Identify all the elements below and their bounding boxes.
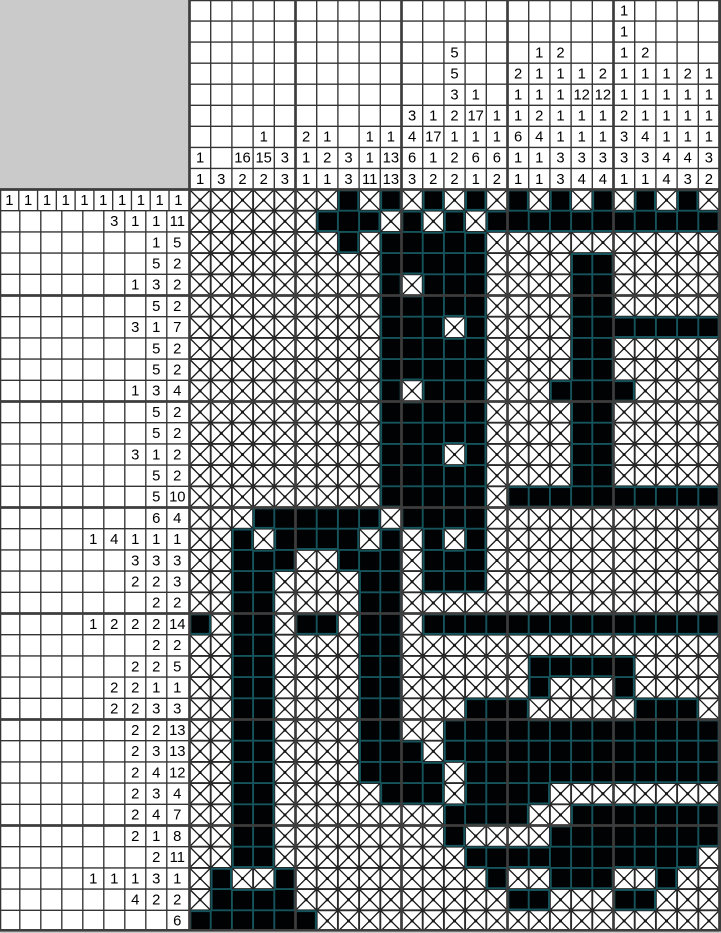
svg-text:6: 6	[472, 151, 480, 167]
svg-text:1: 1	[620, 172, 628, 188]
svg-text:3: 3	[620, 151, 628, 167]
svg-text:1: 1	[110, 871, 118, 887]
svg-text:1: 1	[620, 88, 628, 104]
svg-text:1: 1	[472, 172, 480, 188]
svg-text:1: 1	[137, 193, 145, 209]
svg-text:1: 1	[152, 447, 160, 463]
svg-text:1: 1	[514, 172, 522, 188]
svg-text:11: 11	[170, 214, 185, 230]
svg-text:4: 4	[408, 130, 416, 146]
svg-text:7: 7	[173, 808, 181, 824]
svg-text:14: 14	[169, 617, 185, 633]
svg-text:1: 1	[514, 109, 522, 125]
svg-text:1: 1	[535, 151, 543, 167]
svg-text:3: 3	[344, 172, 352, 188]
svg-text:3: 3	[344, 151, 352, 167]
svg-text:1: 1	[5, 193, 13, 209]
svg-text:1: 1	[705, 66, 713, 82]
svg-text:2: 2	[131, 575, 139, 591]
svg-text:1: 1	[131, 214, 139, 230]
svg-text:2: 2	[302, 130, 310, 146]
svg-text:3: 3	[152, 384, 160, 400]
svg-text:5: 5	[152, 469, 160, 485]
svg-text:1: 1	[24, 193, 32, 209]
svg-text:1: 1	[641, 66, 649, 82]
svg-text:2: 2	[110, 617, 118, 633]
svg-text:1: 1	[173, 532, 181, 548]
svg-text:2: 2	[684, 66, 692, 82]
svg-text:1: 1	[514, 88, 522, 104]
svg-text:3: 3	[684, 172, 692, 188]
svg-text:2: 2	[152, 575, 160, 591]
svg-text:6: 6	[408, 151, 416, 167]
svg-text:2: 2	[173, 893, 181, 909]
svg-text:1: 1	[156, 193, 164, 209]
svg-text:4: 4	[599, 172, 607, 188]
svg-text:1: 1	[173, 871, 181, 887]
svg-text:3: 3	[281, 172, 289, 188]
svg-text:1: 1	[450, 130, 458, 146]
svg-text:1: 1	[535, 88, 543, 104]
svg-text:2: 2	[238, 172, 246, 188]
svg-text:17: 17	[467, 109, 483, 125]
svg-text:2: 2	[152, 638, 160, 654]
svg-text:12: 12	[573, 88, 589, 104]
svg-text:3: 3	[152, 278, 160, 294]
svg-text:1: 1	[620, 66, 628, 82]
svg-text:3: 3	[599, 151, 607, 167]
svg-text:11: 11	[362, 172, 377, 188]
svg-text:1: 1	[493, 109, 501, 125]
svg-text:5: 5	[152, 363, 160, 379]
svg-text:1: 1	[705, 130, 713, 146]
svg-text:7: 7	[173, 320, 181, 336]
svg-text:5: 5	[173, 659, 181, 675]
svg-text:3: 3	[217, 172, 225, 188]
svg-text:3: 3	[173, 553, 181, 569]
svg-text:2: 2	[152, 659, 160, 675]
svg-text:1: 1	[80, 193, 88, 209]
svg-text:1: 1	[62, 193, 70, 209]
svg-text:1: 1	[620, 24, 628, 40]
svg-text:2: 2	[429, 172, 437, 188]
svg-text:5: 5	[152, 257, 160, 273]
svg-text:3: 3	[131, 320, 139, 336]
svg-text:3: 3	[152, 702, 160, 718]
svg-text:1: 1	[578, 109, 586, 125]
svg-text:3: 3	[152, 871, 160, 887]
svg-text:1: 1	[152, 681, 160, 697]
svg-text:2: 2	[620, 109, 628, 125]
svg-text:2: 2	[152, 893, 160, 909]
svg-text:1: 1	[535, 45, 543, 61]
svg-text:2: 2	[152, 617, 160, 633]
svg-text:2: 2	[131, 617, 139, 633]
svg-text:5: 5	[450, 45, 458, 61]
svg-text:1: 1	[152, 532, 160, 548]
svg-text:4: 4	[684, 151, 692, 167]
svg-text:1: 1	[599, 109, 607, 125]
svg-text:1: 1	[578, 66, 586, 82]
svg-text:13: 13	[169, 723, 185, 739]
svg-text:1: 1	[131, 278, 139, 294]
svg-text:5: 5	[450, 66, 458, 82]
svg-text:1: 1	[131, 532, 139, 548]
svg-text:6: 6	[514, 130, 522, 146]
svg-text:2: 2	[131, 765, 139, 781]
svg-text:2: 2	[173, 341, 181, 357]
svg-text:1: 1	[705, 109, 713, 125]
svg-text:2: 2	[260, 172, 268, 188]
svg-text:2: 2	[110, 702, 118, 718]
svg-text:1: 1	[152, 320, 160, 336]
svg-text:2: 2	[110, 681, 118, 697]
svg-text:1: 1	[620, 3, 628, 19]
svg-text:1: 1	[152, 235, 160, 251]
svg-text:2: 2	[323, 151, 331, 167]
svg-text:1: 1	[472, 88, 480, 104]
svg-text:1: 1	[535, 66, 543, 82]
svg-text:6: 6	[173, 914, 181, 930]
svg-text:2: 2	[131, 808, 139, 824]
svg-text:5: 5	[152, 299, 160, 315]
svg-text:2: 2	[131, 829, 139, 845]
svg-text:4: 4	[173, 384, 181, 400]
svg-text:4: 4	[662, 172, 670, 188]
svg-text:3: 3	[173, 702, 181, 718]
svg-text:3: 3	[173, 575, 181, 591]
svg-text:4: 4	[173, 511, 181, 527]
svg-text:15: 15	[255, 151, 271, 167]
svg-text:1: 1	[599, 130, 607, 146]
svg-text:1: 1	[387, 130, 395, 146]
svg-text:1: 1	[684, 109, 692, 125]
svg-text:4: 4	[578, 172, 586, 188]
svg-text:10: 10	[169, 490, 185, 506]
svg-text:1: 1	[556, 66, 564, 82]
svg-text:4: 4	[535, 130, 543, 146]
svg-text:17: 17	[425, 130, 441, 146]
svg-text:12: 12	[595, 88, 611, 104]
svg-text:1: 1	[535, 172, 543, 188]
svg-text:1: 1	[260, 130, 268, 146]
svg-text:2: 2	[131, 787, 139, 803]
svg-text:2: 2	[556, 45, 564, 61]
svg-text:2: 2	[173, 596, 181, 612]
svg-text:3: 3	[556, 172, 564, 188]
svg-text:6: 6	[493, 151, 501, 167]
svg-text:1: 1	[641, 109, 649, 125]
svg-text:6: 6	[152, 511, 160, 527]
svg-text:1: 1	[89, 871, 97, 887]
svg-text:1: 1	[556, 109, 564, 125]
svg-text:5: 5	[173, 235, 181, 251]
svg-text:2: 2	[152, 596, 160, 612]
svg-text:5: 5	[152, 490, 160, 506]
svg-text:12: 12	[169, 765, 185, 781]
svg-text:1: 1	[152, 214, 160, 230]
svg-text:11: 11	[170, 850, 185, 866]
svg-text:1: 1	[662, 109, 670, 125]
svg-text:3: 3	[131, 447, 139, 463]
svg-text:1: 1	[131, 871, 139, 887]
svg-text:2: 2	[450, 109, 458, 125]
svg-text:1: 1	[323, 130, 331, 146]
svg-text:1: 1	[493, 130, 501, 146]
svg-text:1: 1	[662, 88, 670, 104]
svg-text:2: 2	[599, 66, 607, 82]
svg-text:13: 13	[383, 172, 399, 188]
svg-text:3: 3	[450, 88, 458, 104]
svg-text:1: 1	[641, 172, 649, 188]
svg-text:1: 1	[429, 109, 437, 125]
svg-text:4: 4	[173, 787, 181, 803]
svg-text:1: 1	[429, 151, 437, 167]
svg-text:2: 2	[450, 151, 458, 167]
svg-text:2: 2	[173, 363, 181, 379]
svg-text:2: 2	[493, 172, 501, 188]
svg-text:2: 2	[173, 638, 181, 654]
svg-text:1: 1	[556, 130, 564, 146]
svg-text:2: 2	[152, 723, 160, 739]
svg-text:1: 1	[556, 88, 564, 104]
svg-text:3: 3	[408, 109, 416, 125]
svg-text:3: 3	[152, 787, 160, 803]
svg-text:3: 3	[705, 151, 713, 167]
svg-text:2: 2	[514, 66, 522, 82]
svg-text:3: 3	[281, 151, 289, 167]
svg-text:1: 1	[174, 193, 182, 209]
svg-text:1: 1	[705, 88, 713, 104]
svg-text:3: 3	[110, 214, 118, 230]
svg-text:3: 3	[152, 744, 160, 760]
svg-text:3: 3	[408, 172, 416, 188]
svg-text:1: 1	[366, 130, 374, 146]
svg-text:3: 3	[131, 553, 139, 569]
svg-text:2: 2	[173, 299, 181, 315]
svg-text:1: 1	[43, 193, 51, 209]
svg-text:16: 16	[234, 151, 250, 167]
svg-text:2: 2	[535, 109, 543, 125]
svg-text:8: 8	[173, 829, 181, 845]
svg-text:2: 2	[173, 257, 181, 273]
svg-text:2: 2	[173, 278, 181, 294]
svg-text:3: 3	[152, 553, 160, 569]
svg-text:2: 2	[131, 659, 139, 675]
svg-text:2: 2	[173, 447, 181, 463]
svg-text:1: 1	[472, 130, 480, 146]
svg-text:1: 1	[118, 193, 126, 209]
svg-text:3: 3	[641, 151, 649, 167]
svg-text:1: 1	[89, 617, 97, 633]
svg-text:1: 1	[662, 66, 670, 82]
svg-text:4: 4	[662, 151, 670, 167]
svg-text:4: 4	[641, 130, 649, 146]
svg-text:2: 2	[131, 723, 139, 739]
svg-text:1: 1	[196, 172, 204, 188]
svg-text:2: 2	[641, 45, 649, 61]
svg-text:1: 1	[684, 88, 692, 104]
svg-text:2: 2	[131, 702, 139, 718]
svg-text:1: 1	[684, 130, 692, 146]
svg-text:5: 5	[152, 341, 160, 357]
svg-text:4: 4	[131, 893, 139, 909]
svg-text:1: 1	[99, 193, 107, 209]
svg-text:1: 1	[131, 384, 139, 400]
svg-text:1: 1	[641, 88, 649, 104]
svg-text:2: 2	[131, 681, 139, 697]
svg-text:1: 1	[152, 829, 160, 845]
svg-text:5: 5	[152, 426, 160, 442]
svg-text:1: 1	[662, 130, 670, 146]
svg-text:1: 1	[620, 45, 628, 61]
svg-text:2: 2	[173, 469, 181, 485]
svg-text:2: 2	[173, 426, 181, 442]
svg-text:1: 1	[323, 172, 331, 188]
svg-text:3: 3	[556, 151, 564, 167]
svg-text:4: 4	[152, 765, 160, 781]
svg-text:2: 2	[705, 172, 713, 188]
svg-text:1: 1	[302, 151, 310, 167]
svg-text:5: 5	[152, 405, 160, 421]
svg-text:2: 2	[173, 405, 181, 421]
svg-text:2: 2	[450, 172, 458, 188]
svg-text:13: 13	[383, 151, 399, 167]
svg-text:1: 1	[89, 532, 97, 548]
svg-text:1: 1	[578, 130, 586, 146]
svg-text:3: 3	[620, 130, 628, 146]
svg-text:2: 2	[152, 850, 160, 866]
svg-text:1: 1	[514, 151, 522, 167]
svg-text:1: 1	[366, 151, 374, 167]
svg-text:3: 3	[578, 151, 586, 167]
svg-text:4: 4	[110, 532, 118, 548]
svg-text:1: 1	[302, 172, 310, 188]
svg-text:13: 13	[169, 744, 185, 760]
svg-text:2: 2	[131, 744, 139, 760]
svg-text:1: 1	[196, 151, 204, 167]
svg-text:4: 4	[152, 808, 160, 824]
svg-text:1: 1	[173, 681, 181, 697]
